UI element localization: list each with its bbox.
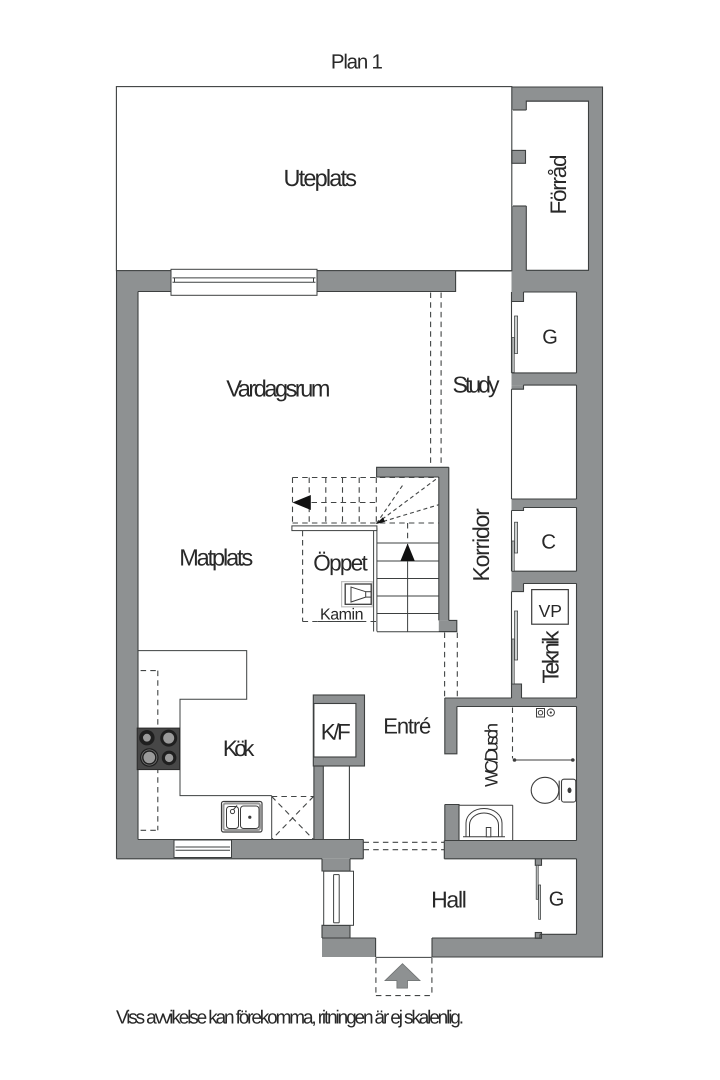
svg-text:Kök: Kök (223, 736, 255, 761)
svg-text:C: C (541, 531, 556, 554)
svg-text:Öppet: Öppet (313, 551, 368, 576)
svg-text:Entré: Entré (383, 713, 431, 738)
svg-text:Vardagsrum: Vardagsrum (226, 376, 330, 402)
svg-text:Study: Study (453, 372, 501, 398)
svg-text:K/F: K/F (321, 719, 351, 744)
svg-text:Matplats: Matplats (179, 545, 253, 571)
svg-text:WC/Dusch: WC/Dusch (482, 723, 502, 787)
svg-text:Teknik: Teknik (538, 630, 564, 684)
svg-text:G: G (542, 327, 558, 349)
svg-text:Viss avvikelse kan förekomma,: Viss avvikelse kan förekomma, ritningen … (116, 1008, 464, 1029)
svg-text:Kamin: Kamin (320, 607, 364, 624)
svg-text:G: G (549, 888, 565, 910)
svg-text:VP: VP (539, 601, 562, 621)
svg-text:Plan 1: Plan 1 (331, 51, 383, 74)
svg-text:Hall: Hall (431, 887, 467, 913)
svg-text:Förråd: Förråd (546, 155, 571, 215)
svg-text:Uteplats: Uteplats (284, 165, 358, 191)
svg-text:Korridor: Korridor (468, 508, 494, 582)
